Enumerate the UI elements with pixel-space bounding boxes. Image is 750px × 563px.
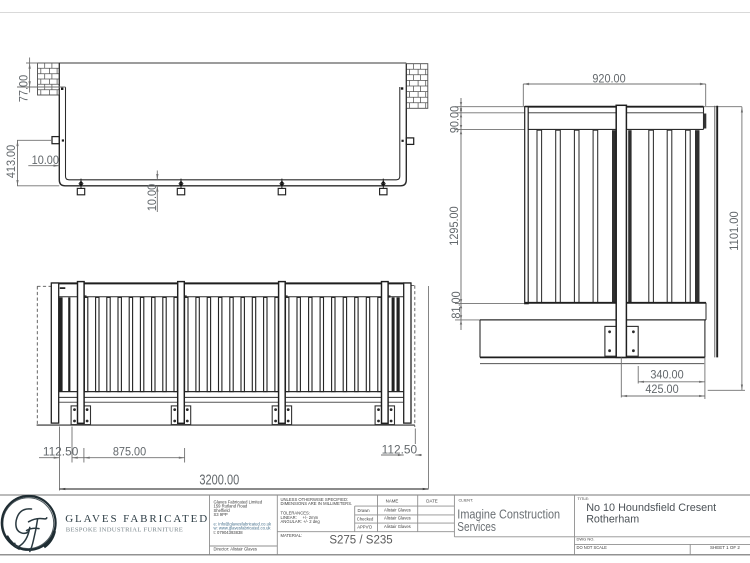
- svg-text:DATE: DATE: [426, 499, 437, 504]
- svg-text:340.00: 340.00: [650, 368, 684, 382]
- svg-text:Alistair Glaves: Alistair Glaves: [384, 524, 411, 529]
- svg-text:Director: Alistair Glaves: Director: Alistair Glaves: [214, 547, 258, 552]
- svg-text:S3 9PP: S3 9PP: [214, 512, 228, 517]
- svg-text:GLAVES FABRICATED: GLAVES FABRICATED: [65, 513, 207, 525]
- svg-text:DWG NO.: DWG NO.: [577, 537, 595, 542]
- svg-text:1295.00: 1295.00: [447, 206, 461, 246]
- svg-text:77.00: 77.00: [16, 74, 30, 102]
- svg-text:No 10 Houndsfield Cresent: No 10 Houndsfield Cresent: [586, 502, 716, 514]
- svg-text:APPV'D: APPV'D: [357, 525, 372, 530]
- svg-text:CLIENT:: CLIENT:: [459, 498, 473, 503]
- svg-text:112.50: 112.50: [43, 444, 79, 458]
- svg-text:BESPOKE INDUSTRIAL FURNITURE: BESPOKE INDUSTRIAL FURNITURE: [66, 527, 183, 534]
- svg-text:MATERIAL:: MATERIAL:: [281, 533, 303, 538]
- svg-text:Rotherham: Rotherham: [586, 514, 639, 526]
- svg-text:NAME: NAME: [386, 499, 399, 504]
- svg-text:Services: Services: [457, 520, 496, 534]
- svg-text:81.00: 81.00: [449, 291, 463, 319]
- svg-text:10.00: 10.00: [145, 183, 159, 211]
- svg-text:3200.00: 3200.00: [199, 473, 239, 489]
- svg-text:425.00: 425.00: [645, 382, 679, 396]
- svg-text:90.00: 90.00: [447, 105, 461, 133]
- svg-text:Checked: Checked: [357, 516, 374, 521]
- svg-text:10.00: 10.00: [32, 153, 60, 167]
- svg-text:ANGULAR: +/- 2 deg: ANGULAR: +/- 2 deg: [281, 519, 321, 524]
- svg-text:SHEET 1 OF 2: SHEET 1 OF 2: [710, 545, 740, 550]
- svg-text:413.00: 413.00: [4, 144, 18, 178]
- svg-text:Alistair Glaves: Alistair Glaves: [384, 516, 411, 521]
- svg-text:875.00: 875.00: [113, 444, 147, 458]
- svg-text:TITLE:: TITLE:: [578, 496, 590, 501]
- svg-text:920.00: 920.00: [592, 71, 626, 85]
- svg-text:t: 07904393838: t: 07904393838: [214, 530, 244, 535]
- svg-text:DO NOT SCALE: DO NOT SCALE: [577, 545, 608, 550]
- svg-text:1101.00: 1101.00: [727, 211, 741, 251]
- svg-text:Alistair Glaves: Alistair Glaves: [384, 507, 411, 512]
- svg-text:DIMENSIONS ARE IN MILLIMETERS.: DIMENSIONS ARE IN MILLIMETERS.: [281, 501, 353, 506]
- svg-text:S275 / S235: S275 / S235: [329, 535, 392, 547]
- svg-text:112.50: 112.50: [382, 442, 418, 456]
- svg-text:Drawn: Drawn: [358, 508, 371, 513]
